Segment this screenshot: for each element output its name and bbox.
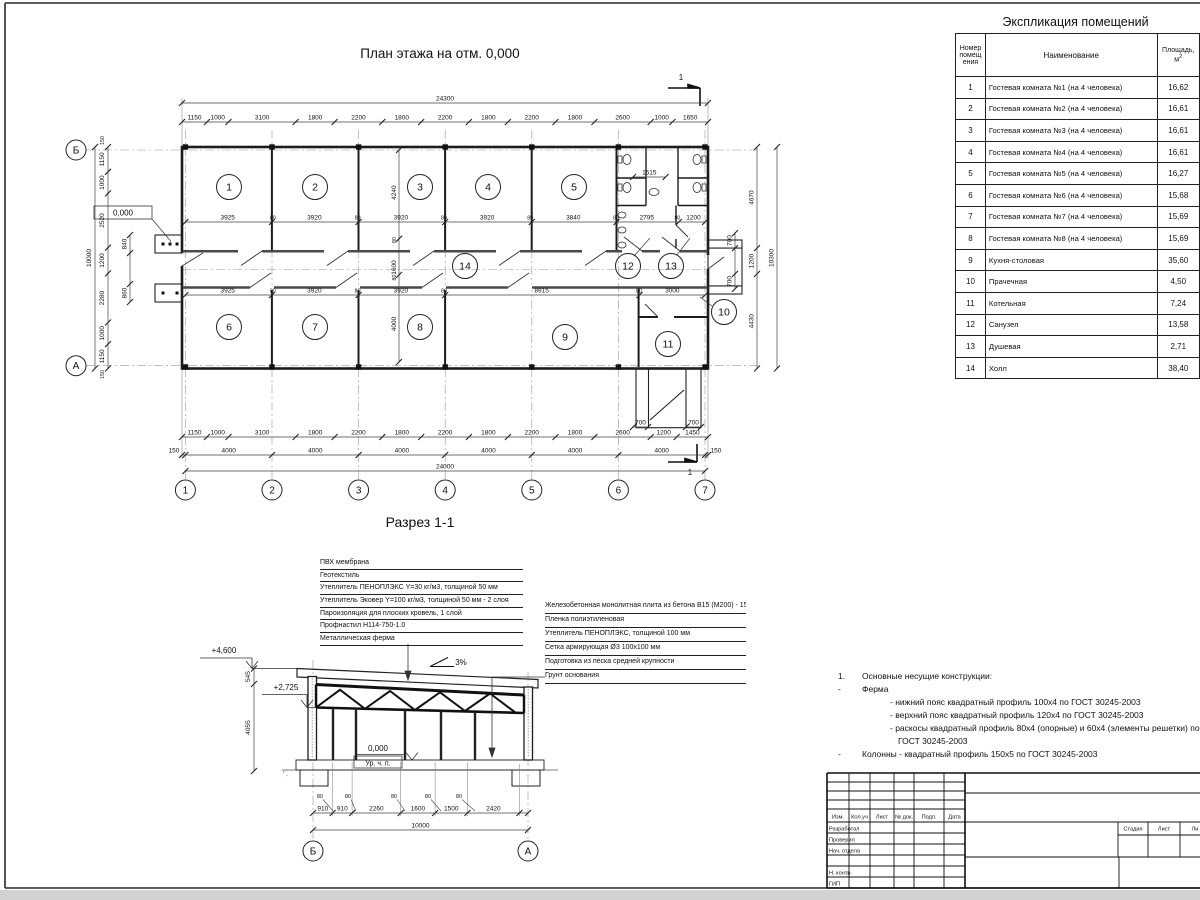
- dim-label: 1800: [395, 430, 410, 437]
- note-line: - нижний пояс квадратный профиль 100х4 п…: [890, 696, 1200, 709]
- dim-label: 2420: [486, 806, 501, 813]
- table-row: 1Гостевая комната №1 (на 4 человека)16,6…: [956, 77, 1200, 99]
- axis-label: 7: [702, 486, 708, 497]
- titleblock-row: Разработал: [829, 827, 859, 833]
- foundation-right: [512, 770, 540, 786]
- cell-name: Котельная: [985, 292, 1157, 314]
- room-number: 9: [562, 332, 568, 344]
- dim-label: 80: [674, 216, 680, 222]
- porch-dots: [162, 243, 179, 295]
- titleblock-sheet: Лист: [1158, 827, 1171, 833]
- note-line: - раскосы квадратный профиль 80х4 (опорн…: [890, 722, 1200, 735]
- area-label: Площадь,: [1162, 47, 1194, 54]
- dim-label: 10000: [411, 823, 429, 830]
- floor-note-label: Ур. ч. п.: [365, 760, 390, 767]
- table-row: 11Котельная7,24: [956, 292, 1200, 314]
- layer-line: Металлическая ферма: [320, 633, 523, 646]
- note-text: Ферма: [862, 684, 889, 694]
- section-axis-bubbles: [303, 841, 538, 861]
- dim-label: 2200: [351, 115, 366, 122]
- layer-line: Утеплитель Эковер Y=100 кг/м3, толщиной …: [320, 595, 523, 608]
- dim-label: 1200: [99, 253, 106, 268]
- dim-label: 700: [727, 235, 734, 246]
- dim-label: 3840: [566, 215, 581, 222]
- dim-label: 1800: [395, 115, 410, 122]
- dim-label: 80: [345, 794, 351, 800]
- table-row: 3Гостевая комната №3 (на 4 человека)16,6…: [956, 120, 1200, 142]
- drawing-sheet: План этажа на отм. 0,000: [0, 0, 1200, 890]
- plan-room-numbers: [217, 175, 737, 357]
- cell-number: 4: [956, 141, 986, 163]
- dim-label: 2200: [524, 115, 539, 122]
- room-schedule-table: Номер помещ ения Наименование Площадь,м2…: [955, 33, 1200, 379]
- dim-label: 1150: [188, 430, 202, 437]
- dim-label: 150: [711, 448, 722, 455]
- dim-label: 4240: [391, 185, 398, 200]
- dim-label: 4000: [308, 448, 323, 455]
- cell-name: Холл: [985, 357, 1157, 379]
- dim-label: 2600: [615, 430, 630, 437]
- cell-name: Душевая: [985, 336, 1157, 358]
- dim-label: 4000: [654, 448, 669, 455]
- dim-label: 2260: [369, 806, 384, 813]
- dim-label: 3920: [480, 215, 495, 222]
- plan-level-label: 0,000: [113, 209, 134, 218]
- cell-area: 16,61: [1157, 141, 1199, 163]
- cell-name: Гостевая комната №7 (на 4 человека): [985, 206, 1157, 228]
- dim-label: 2795: [640, 215, 655, 222]
- axis-label: А: [73, 361, 80, 372]
- note-marker: -: [836, 748, 862, 761]
- dim-label: 1600: [391, 260, 398, 275]
- col-header-number: Номер помещ ения: [956, 34, 986, 77]
- room-number: 12: [622, 261, 634, 273]
- cell-area: 13,58: [1157, 314, 1199, 336]
- room-number: 7: [312, 322, 318, 334]
- room-number: 2: [312, 182, 318, 194]
- dim-label: 10300: [769, 249, 776, 267]
- level-label-truss: +2,725: [274, 683, 299, 692]
- table-row: 6Гостевая комната №6 (на 4 человека)15,6…: [956, 184, 1200, 206]
- dim-label: 3000: [665, 288, 680, 295]
- dim-label: 80: [425, 794, 431, 800]
- axis-label: 1: [183, 486, 189, 497]
- cell-name: Прачечная: [985, 271, 1157, 293]
- dim-label: 1200: [749, 253, 756, 268]
- table-row: 12Санузел13,58: [956, 314, 1200, 336]
- dim-label: 80: [355, 289, 361, 295]
- dim-label: 700: [635, 420, 646, 427]
- cell-number: 10: [956, 271, 986, 293]
- dim-label: 4670: [749, 190, 756, 205]
- dim-label: 2200: [351, 430, 366, 437]
- room-number: 14: [459, 261, 471, 273]
- axis-label: 2: [269, 486, 275, 497]
- dim-label: 2280: [99, 290, 106, 305]
- dim-label: 80: [317, 794, 323, 800]
- note-text: Колонны - квадратный профиль 150х5 по ГО…: [862, 749, 1098, 759]
- cell-name: Кухня-столовая: [985, 249, 1157, 271]
- dim-label: 80: [441, 289, 447, 295]
- dim-label: 3920: [307, 288, 322, 295]
- table-row: 13Душевая2,71: [956, 336, 1200, 358]
- dim-label: 700: [727, 276, 734, 287]
- cell-number: 14: [956, 357, 986, 379]
- dim-label: 1150: [99, 152, 106, 166]
- dim-label: 4000: [391, 316, 398, 331]
- table-row: 10Прачечная4,50: [956, 271, 1200, 293]
- dim-label: 1800: [481, 115, 496, 122]
- table-row: 5Гостевая комната №5 (на 4 человека)16,2…: [956, 163, 1200, 185]
- note-line: -Ферма: [836, 683, 1200, 696]
- room-number: 5: [571, 182, 577, 194]
- cell-area: 38,40: [1157, 357, 1199, 379]
- table-row: 7Гостевая комната №7 (на 4 человека)15,6…: [956, 206, 1200, 228]
- dim-label: 3925: [220, 215, 235, 222]
- dim-label: 3920: [394, 215, 409, 222]
- layer-line: Геотекстиль: [320, 570, 523, 583]
- note-line: 1.Основные несущие конструкции:: [836, 670, 1200, 683]
- dim-label: 3100: [255, 115, 270, 122]
- dim-label: 3920: [394, 288, 409, 295]
- dim-label: 2200: [438, 115, 453, 122]
- cell-name: Гостевая комната №6 (на 4 человека): [985, 184, 1157, 206]
- room-number: 3: [417, 182, 423, 194]
- room-number: 11: [663, 339, 674, 351]
- section-columns: [333, 709, 475, 761]
- dim-label: 3100: [255, 430, 270, 437]
- dim-label: 1000: [99, 326, 106, 341]
- floor-layers-callout: Железобетонная монолитная плита из бетон…: [545, 600, 746, 684]
- layer-line: Подготовка из песка средней крупности: [545, 656, 746, 670]
- dim-label: 24000: [436, 464, 454, 471]
- dim-label: 80: [636, 289, 642, 295]
- titleblock-col: Изм.: [832, 815, 844, 821]
- floor-slab: [296, 760, 544, 770]
- axis-label: А: [525, 847, 532, 858]
- dim-label: 1650: [683, 115, 698, 122]
- dim-label: 150: [169, 448, 180, 455]
- dim-label: 1450: [685, 430, 700, 437]
- cell-area: 15,68: [1157, 184, 1199, 206]
- layer-line: Утеплитель ПЕНОПЛЭКС, толщиной 100 мм: [545, 628, 746, 642]
- titleblock-row: Проверил: [829, 838, 855, 844]
- titleblock-col: № док.: [895, 815, 913, 821]
- axis-label: 3: [356, 486, 362, 497]
- titleblock-col: Кол.уч: [851, 815, 868, 821]
- cell-area: 16,61: [1157, 98, 1199, 120]
- titleblock-row: Нач. отдела: [829, 849, 861, 855]
- dim-label: 4000: [221, 448, 236, 455]
- cell-number: 5: [956, 163, 986, 185]
- dim-label: 700: [688, 420, 699, 427]
- foundation-left: [300, 770, 328, 786]
- dim-label: 10000: [86, 249, 93, 267]
- cell-name: Санузел: [985, 314, 1157, 336]
- cell-area: 35,60: [1157, 249, 1199, 271]
- dim-label: 860: [122, 287, 129, 298]
- dim-label: 2200: [438, 430, 453, 437]
- dim-label: 1600: [411, 806, 426, 813]
- note-line: - верхний пояс квадратный профиль 120х4 …: [890, 709, 1200, 722]
- col-header-area: Площадь,м2: [1157, 34, 1199, 77]
- table-row: 9Кухня-столовая35,60: [956, 249, 1200, 271]
- sanitary-fixtures: [618, 155, 706, 249]
- dim-label: 1800: [568, 430, 583, 437]
- dim-label: 1800: [481, 430, 496, 437]
- table-header-row: Номер помещ ения Наименование Площадь,м2: [956, 34, 1200, 77]
- room-schedule-title: Экспликация помещений: [953, 15, 1198, 29]
- dim-label: 1800: [308, 115, 323, 122]
- titleblock-row: Н. контр.: [829, 871, 853, 877]
- cell-area: 16,61: [1157, 120, 1199, 142]
- dim-label: 150: [100, 370, 106, 379]
- dim-label: 4000: [568, 448, 583, 455]
- cell-name: Гостевая комната №4 (на 4 человека): [985, 141, 1157, 163]
- dim-label: 80: [270, 289, 276, 295]
- dim-label: 80: [527, 216, 533, 222]
- roof-layers-callout: ПВХ мембрана Геотекстиль Утеплитель ПЕНО…: [320, 557, 523, 646]
- room-number: 6: [226, 322, 232, 334]
- layer-line: Пленка полиэтиленовая: [545, 614, 746, 628]
- dim-label: 3920: [307, 215, 322, 222]
- table-row: 4Гостевая комната №4 (на 4 человека)16,6…: [956, 141, 1200, 163]
- titleblock-col: Подп.: [922, 815, 937, 821]
- dim-label: 1500: [444, 806, 459, 813]
- cell-area: 15,69: [1157, 228, 1199, 250]
- cell-number: 1: [956, 77, 986, 99]
- axis-label: Б: [73, 146, 80, 157]
- screenshot-stage: План этажа на отм. 0,000: [0, 0, 1200, 900]
- table-row: 8Гостевая комната №8 (на 4 человека)15,6…: [956, 228, 1200, 250]
- axis-label: 5: [529, 486, 535, 497]
- titleblock-row: ГИП: [829, 882, 840, 888]
- titleblock-col: Лист: [876, 815, 889, 821]
- layer-line: Сетка армирующая Ø3 100х100 мм: [545, 642, 746, 656]
- dim-label: 1200: [656, 430, 671, 437]
- dim-label: 1150: [188, 115, 202, 122]
- dim-label: 1200: [686, 215, 701, 222]
- room-number: 10: [718, 307, 730, 319]
- dim-label: 8915: [534, 288, 549, 295]
- layer-line: Железобетонная монолитная плита из бетон…: [545, 600, 746, 614]
- cell-area: 4,50: [1157, 271, 1199, 293]
- construction-notes: 1.Основные несущие конструкции: -Ферма -…: [836, 670, 1200, 761]
- dim-label: 910: [317, 806, 328, 813]
- dim-label: 24300: [436, 96, 454, 103]
- section-title: Разрез 1-1: [386, 514, 455, 530]
- titleblock-sheets: Ли: [1192, 827, 1199, 833]
- cell-number: 2: [956, 98, 986, 120]
- slope-mark: [430, 658, 454, 667]
- slope-label: 3%: [455, 658, 467, 667]
- dim-label: 80: [456, 794, 462, 800]
- layer-line: Утеплитель ПЕНОПЛЭКС Y=30 кг/м3, толщино…: [320, 582, 523, 595]
- level-label-roof: +4,600: [212, 646, 237, 655]
- dim-label: 1800: [568, 115, 583, 122]
- dim-label: 910: [337, 806, 348, 813]
- dim-label: 80: [355, 216, 361, 222]
- cut-label-top: 1: [679, 73, 684, 82]
- cell-area: 16,27: [1157, 163, 1199, 185]
- cell-area: 2,71: [1157, 336, 1199, 358]
- cell-area: 7,24: [1157, 292, 1199, 314]
- cell-number: 9: [956, 249, 986, 271]
- layer-line: ПВХ мембрана: [320, 557, 523, 570]
- col-header-name: Наименование: [985, 34, 1157, 77]
- room-number: 8: [417, 322, 423, 334]
- plan-title: План этажа на отм. 0,000: [360, 46, 519, 61]
- cell-area: 16,62: [1157, 77, 1199, 99]
- dim-label: 4000: [395, 448, 410, 455]
- cell-number: 11: [956, 292, 986, 314]
- note-line: ГОСТ 30245-2003: [898, 735, 1200, 748]
- roof-truss: [316, 685, 524, 714]
- cell-number: 13: [956, 336, 986, 358]
- dim-label: 1000: [210, 115, 225, 122]
- note-number: 1.: [836, 670, 862, 683]
- area-sup: 2: [1179, 54, 1182, 60]
- dim-label: 3925: [220, 288, 235, 295]
- note-marker: -: [836, 683, 862, 696]
- layer-line: Грунт основания: [545, 670, 746, 684]
- layer-line: Профнастил Н114-750-1.0: [320, 620, 523, 633]
- titleblock-stage: Стадия: [1123, 827, 1142, 833]
- layer-line: Пароизоляция для плоских кровель, 1 слой: [320, 608, 523, 621]
- dim-label: 840: [122, 238, 129, 249]
- table-row: 2Гостевая комната №2 (на 4 человека)16,6…: [956, 98, 1200, 120]
- title-block: [827, 773, 1200, 888]
- dim-label: 80: [613, 216, 619, 222]
- dim-label: 80: [441, 216, 447, 222]
- dim-label: 80: [392, 275, 398, 281]
- dim-label: 1800: [308, 430, 323, 437]
- cell-name: Гостевая комната №1 (на 4 человека): [985, 77, 1157, 99]
- axis-label: Б: [310, 847, 317, 858]
- note-text: Основные несущие конструкции:: [862, 671, 992, 681]
- dim-label: 150: [100, 136, 106, 145]
- dim-label: 1000: [99, 175, 106, 190]
- cell-number: 3: [956, 120, 986, 142]
- plan-dim-labels: 24300 1150 1000 3100 1800 2200 1800 2200…: [86, 96, 776, 471]
- room-number: 4: [485, 182, 491, 194]
- cell-name: Гостевая комната №2 (на 4 человека): [985, 98, 1157, 120]
- level-label-floor: 0,000: [368, 744, 389, 753]
- dim-label: 80: [392, 237, 398, 243]
- cell-name: Гостевая комната №5 (на 4 человека): [985, 163, 1157, 185]
- dim-label: 1000: [210, 430, 225, 437]
- dim-label: 4000: [481, 448, 496, 455]
- table-row: 14Холл38,40: [956, 357, 1200, 379]
- plan-room-number-labels: 1 2 3 4 5 6 7 8 9 10 11 12 13 14: [226, 182, 730, 351]
- cell-number: 8: [956, 228, 986, 250]
- room-number: 1: [226, 182, 232, 194]
- dim-label: 80: [391, 794, 397, 800]
- cell-area: 15,69: [1157, 206, 1199, 228]
- section-cut-marks: [668, 85, 700, 463]
- dim-label: 1515: [642, 170, 657, 177]
- dim-label: 2200: [524, 430, 539, 437]
- room-number: 13: [665, 261, 677, 273]
- dim-label: 2520: [99, 213, 106, 228]
- dim-label: 80: [270, 216, 276, 222]
- axis-label: 6: [616, 486, 622, 497]
- cell-number: 7: [956, 206, 986, 228]
- cell-number: 6: [956, 184, 986, 206]
- cell-number: 12: [956, 314, 986, 336]
- dim-label: 1000: [654, 115, 669, 122]
- dim-label: 4055: [245, 720, 252, 735]
- dim-label: 1150: [99, 349, 106, 363]
- dim-label: 4430: [749, 314, 756, 329]
- dim-label: 2600: [615, 115, 630, 122]
- note-line: -Колонны - квадратный профиль 150х5 по Г…: [836, 748, 1200, 761]
- dim-label: 545: [245, 671, 252, 682]
- cell-name: Гостевая комната №8 (на 4 человека): [985, 228, 1157, 250]
- cut-label-bottom: 1: [688, 468, 693, 477]
- cell-name: Гостевая комната №3 (на 4 человека): [985, 120, 1157, 142]
- axis-label: 4: [442, 486, 448, 497]
- titleblock-col: Дата: [948, 815, 961, 821]
